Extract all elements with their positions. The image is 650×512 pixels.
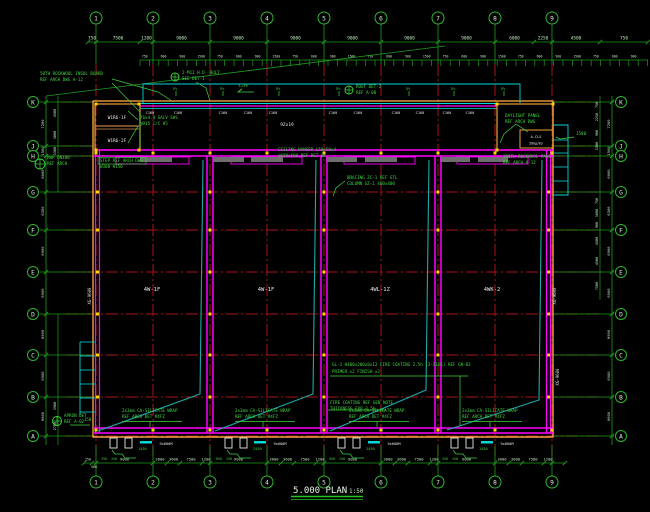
- dim-text-top1: 9000: [290, 36, 301, 42]
- door-count-label: 9x600M: [160, 442, 174, 446]
- dim-text-top2: 600: [537, 55, 543, 59]
- dim-text-top2: 1500: [498, 55, 506, 59]
- annotation-text: REF ARCH DWG A-12: [40, 77, 83, 82]
- sill-mark: [481, 441, 493, 444]
- slope-mark: 5%: [336, 86, 341, 91]
- grid-bubble-row-left-label: A: [31, 433, 35, 440]
- column-node: [547, 271, 550, 274]
- grid-bubble-col-bottom-label: 8: [493, 479, 497, 486]
- dim-text-left-inner: 3900: [53, 402, 57, 410]
- annotation-text: 2x3mm CA-SILICATE WRAP: [235, 408, 291, 413]
- annotation-text: 2x3mm CA-SILICATE WRAP: [349, 408, 405, 413]
- annotation-text: REF ARCH DET #4FZ: [235, 414, 278, 419]
- column-node: [437, 229, 440, 232]
- purlin-label: C160: [443, 111, 452, 115]
- column-node: [437, 313, 440, 316]
- dim-text-left: 6900: [40, 246, 45, 256]
- column-node: [323, 191, 326, 194]
- slope-mark: 5%: [173, 86, 178, 91]
- dim-text-top2: 900: [179, 55, 185, 59]
- dim-text-top1: 750: [88, 36, 96, 42]
- grid-bubble-col-top-label: 7: [436, 15, 440, 22]
- grid-bubble-row-right-label: H: [619, 153, 623, 160]
- grid-bubble-row-right-label: F: [619, 227, 623, 234]
- bay-label: 4WL-1Z: [370, 287, 391, 293]
- column-node: [547, 191, 550, 194]
- dim-text-right-inner: 4500: [595, 257, 599, 265]
- corner-box-right: [497, 104, 553, 150]
- dim-text-right: 1500: [606, 146, 611, 156]
- dim-text-right-inner: 7500: [595, 282, 599, 290]
- grid-bubble-col-top-label: 1: [94, 15, 98, 22]
- door-dim-text: 250: [111, 457, 117, 461]
- dim-text-top2: 900: [330, 55, 336, 59]
- door-frame: [451, 438, 458, 448]
- annotation-text: REF A-02: [64, 419, 85, 424]
- grid-bubble-col-bottom-label: 7: [436, 479, 440, 486]
- leader: [112, 83, 140, 147]
- grid-bubble-col-top-label: 4: [265, 15, 269, 22]
- column-node: [496, 103, 499, 106]
- slope-arrow-main: [238, 89, 254, 92]
- dim-text-top2: 900: [405, 55, 411, 59]
- dim-text-top2: 600: [461, 55, 467, 59]
- door-count-label: 9x600M: [501, 442, 515, 446]
- dim-text-top1: 9000: [233, 36, 244, 42]
- line: [46, 46, 445, 96]
- annotation-text: REF ARCH: [47, 161, 68, 166]
- purlin-label: C160: [269, 111, 278, 115]
- dim-text-bottom: 3600: [497, 457, 507, 462]
- column-node: [95, 103, 98, 106]
- purlin-label: C160: [354, 111, 363, 115]
- dim-text-top1: 7500: [113, 36, 124, 42]
- purlin-label: C160: [416, 111, 425, 115]
- grid-bubble-col-bottom-label: 4: [265, 479, 269, 486]
- slope-mark: 5%: [451, 86, 456, 91]
- door-dim-text: 850: [329, 457, 335, 461]
- title-scale: 1:50: [349, 488, 364, 495]
- column-node: [496, 149, 499, 152]
- door-count-label: 9x600M: [274, 442, 288, 446]
- dim-text-right-inner: 3600: [595, 209, 599, 217]
- grid-bubble-col-top-label: 2: [151, 15, 155, 22]
- dim-text-top2: 600: [311, 55, 317, 59]
- dim-text-top2: 900: [631, 55, 637, 59]
- grid-bubble-col-bottom-label: 6: [379, 479, 383, 486]
- column-node: [209, 229, 212, 232]
- grid-bubble-row-left-label: D: [31, 311, 35, 318]
- column-node: [96, 191, 99, 194]
- wall-label: XG-9600: [552, 287, 557, 304]
- annotation-text: 2-M12 H.D. BOLT: [182, 70, 220, 75]
- grid-bubble-row-right-label: D: [619, 311, 623, 318]
- grid-bubble-row-left-label: F: [31, 227, 35, 234]
- dim-text-left: 6900: [40, 288, 45, 298]
- column-node: [95, 149, 98, 152]
- dim-text-left: 6000: [40, 169, 45, 179]
- brace-diagonal: [98, 160, 203, 431]
- leader: [196, 82, 210, 101]
- column-node: [437, 354, 440, 357]
- column-node: [437, 191, 440, 194]
- dim-text-top1: 1200: [141, 36, 152, 42]
- annotation-text: REF ARCH DET #4FZ: [122, 414, 165, 419]
- annotation-text: GL-1 H400x200x8x12 FIRE COATING 2.5h (3-…: [332, 362, 471, 367]
- opening-bar: [326, 157, 357, 162]
- opening-bar: [365, 157, 397, 162]
- column-node: [323, 396, 326, 399]
- door-dim-text: 250: [339, 457, 345, 461]
- dim-text-bottom: 9000: [234, 457, 244, 462]
- dim-text-right: 7200: [606, 119, 611, 129]
- room-label: W1R6-2F: [108, 138, 127, 144]
- dim-text-left-inner: 4500: [53, 109, 57, 117]
- right-ladder: [553, 125, 568, 195]
- column-node: [437, 271, 440, 274]
- dim-text-bottom: 1200: [201, 457, 211, 462]
- dim-text-right: 6300: [606, 206, 611, 216]
- dim-text-right-inner: 900: [595, 222, 599, 228]
- column-node: [152, 152, 155, 155]
- column-node: [96, 313, 99, 316]
- annotation-text: RWP DN100: [47, 155, 70, 160]
- dim-text-bottom: 3600: [397, 457, 407, 462]
- annotation-text: REF ARCH A-12: [503, 160, 536, 165]
- dim-text-left: 6900: [40, 329, 45, 339]
- dim-text-bottom: 3600: [169, 457, 179, 462]
- grid-bubble-col-bottom-label: 9: [550, 479, 554, 486]
- purlin-label: C160: [329, 111, 338, 115]
- dim-text-top2: 900: [255, 55, 261, 59]
- column-node: [323, 313, 326, 316]
- dim-text-left: 1500: [40, 146, 45, 156]
- grid-bubble-row-right-label: J: [619, 143, 623, 150]
- dim-text-top2: 600: [612, 55, 618, 59]
- door-frame: [466, 438, 473, 448]
- door-dim-text: 250: [101, 457, 107, 461]
- dim-text-bottom: 3600: [155, 457, 165, 462]
- annotation-text: @600x600 REF DET-07: [278, 153, 326, 158]
- annotation-text: ROOF DET-2: [356, 84, 382, 89]
- column-node: [138, 149, 141, 152]
- column-node: [152, 429, 155, 432]
- slope-mark: 5%: [501, 86, 506, 91]
- grid-bubble-row-left-label: K: [31, 99, 35, 106]
- grid-bubble-col-bottom-label: 3: [208, 479, 212, 486]
- grid-bubble-row-left-label: H: [31, 153, 35, 160]
- dim-text-top2: 750: [443, 55, 449, 59]
- door-frame: [125, 438, 132, 448]
- grid-bubble-col-bottom-label: 1: [94, 479, 98, 486]
- room-label: W1R6-1F: [108, 115, 127, 121]
- annotation-text: REF ARCH DET #4FZ: [462, 414, 505, 419]
- grid-bubble-row-left-label: E: [31, 269, 35, 276]
- wall-label: XG-9600: [87, 287, 92, 304]
- column-node: [209, 271, 212, 274]
- dim-text-top2: 750: [142, 55, 148, 59]
- dim-text-bottom: 9000: [462, 457, 472, 462]
- column-node: [547, 229, 550, 232]
- annotation-text: PRIMER x2 FINISH x2: [332, 369, 380, 374]
- annotation-text: REF ARCH DET #4FZ: [349, 414, 392, 419]
- dim-text-left: 6600: [40, 411, 45, 421]
- column-node: [95, 152, 98, 155]
- column-node: [266, 152, 269, 155]
- column-node: [547, 396, 550, 399]
- column-node: [266, 429, 269, 432]
- annotation-text: REF A-08: [356, 90, 377, 95]
- dim-text-right-inner: 1500: [595, 142, 599, 150]
- brace-diagonal: [330, 160, 429, 431]
- column-node: [552, 103, 555, 106]
- dim-text-bottom: 7500: [528, 457, 538, 462]
- dim-text-left: 7200: [40, 119, 45, 129]
- sill-mark: [140, 441, 152, 444]
- column-node: [494, 152, 497, 155]
- dim-text-top1: 6000: [509, 36, 520, 42]
- leader: [516, 124, 528, 132]
- grid-bubble-col-top-label: 9: [550, 15, 554, 22]
- grid-bubble-col-top-label: 5: [322, 15, 326, 22]
- room-label: 50kg/m3: [529, 142, 543, 146]
- dim-text-top1: 9000: [404, 36, 415, 42]
- dim-text-right: 6000: [606, 169, 611, 179]
- annotation-text: W300 H150: [100, 164, 123, 169]
- purlin-label: C160: [466, 111, 475, 115]
- annotation-text: FIRE COATING REF GEN NOTE: [330, 400, 394, 405]
- column-node: [209, 191, 212, 194]
- dim-text-bottom: 250: [85, 458, 91, 462]
- dim-text-top1: 9000: [176, 36, 187, 42]
- dim-text-top2: 1500: [197, 55, 205, 59]
- column-node: [209, 152, 212, 155]
- leader: [112, 79, 172, 101]
- column-node: [95, 429, 98, 432]
- column-node: [437, 152, 440, 155]
- column-node: [323, 429, 326, 432]
- column-node: [323, 229, 326, 232]
- bay-label: 4W-1F: [258, 287, 275, 293]
- annotation-text: DAYLIGHT PANEL: [505, 113, 541, 118]
- column-node: [96, 271, 99, 274]
- dim-text-top2: 750: [518, 55, 524, 59]
- dim-text-bottom: 1200: [543, 457, 553, 462]
- column-node: [96, 354, 99, 357]
- annotation-text: 150: [84, 417, 92, 422]
- leader: [500, 124, 516, 143]
- strip-label: 9Zx19: [280, 122, 294, 128]
- annotation-text: STEP REF ARCH DWG: [100, 158, 143, 163]
- dim-text-right: 6600: [606, 411, 611, 421]
- bay-label: 4WK-2: [484, 287, 501, 293]
- column-node: [209, 429, 212, 432]
- dim-text-top1: 4500: [571, 36, 582, 42]
- column-node: [209, 354, 212, 357]
- dim-text-top2: 900: [555, 55, 561, 59]
- annotation-text: 2x3mm CA-SILICATE WRAP: [122, 408, 178, 413]
- grid-bubble-row-left-label: G: [31, 189, 35, 196]
- annotation-text: @915 C/C H5: [140, 121, 168, 126]
- dim-text-top1: 2250: [538, 36, 549, 42]
- dim-text-right-inner: 750: [595, 102, 599, 108]
- dim-text-top2: 600: [161, 55, 167, 59]
- title-text: 5.000 PLAN: [293, 486, 347, 496]
- annotation-text: 76x4.0 GALV SHS: [140, 115, 178, 120]
- dim-text-top2: 600: [386, 55, 392, 59]
- slope-mark: 5%: [276, 86, 281, 91]
- column-node: [96, 396, 99, 399]
- column-node: [96, 229, 99, 232]
- door-dim-text: 250: [226, 457, 232, 461]
- door-dim-text: 850: [216, 457, 222, 461]
- annotation-text: 1500: [576, 131, 587, 136]
- purlin-label: C160: [244, 111, 253, 115]
- grid-bubble-col-top-label: 6: [379, 15, 383, 22]
- dim-text-right: 6900: [606, 329, 611, 339]
- purlin-label: C160: [392, 111, 401, 115]
- slope-mark: 5%: [220, 86, 225, 91]
- door-frame: [353, 438, 360, 448]
- dim-text-top2: 750: [292, 55, 298, 59]
- door-frame: [338, 438, 345, 448]
- annotation-text: SEE DET-1: [182, 76, 205, 81]
- column-node: [209, 313, 212, 316]
- dim-text-right: 6900: [606, 288, 611, 298]
- grid-bubble-row-right-label: E: [619, 269, 623, 276]
- door-frame: [110, 438, 117, 448]
- column-node: [437, 396, 440, 399]
- column-node: [380, 429, 383, 432]
- dim-text-top2: 600: [236, 55, 242, 59]
- column-node: [380, 152, 383, 155]
- grid-bubble-col-top-label: 3: [208, 15, 212, 22]
- bay-label: 4W-1F: [144, 287, 161, 293]
- door-frame: [240, 438, 247, 448]
- door-dim-text: 2450: [253, 447, 262, 451]
- dim-text-bottom: 3600: [511, 457, 521, 462]
- door-dim-text: 1450: [138, 447, 147, 451]
- sill-mark: [368, 441, 380, 444]
- room-label: A-CLS: [531, 135, 542, 139]
- drawing-title: 5.000 PLAN 1:50: [291, 486, 364, 500]
- grid-bubble-row-right-label: C: [619, 352, 623, 359]
- dim-text-bottom: 1200: [315, 457, 325, 462]
- grid-bubble-row-left-label: J: [31, 143, 35, 150]
- dim-text-bottom: 3600: [283, 457, 293, 462]
- dim-text-left-inner: 3000: [53, 131, 57, 139]
- cad-canvas[interactable]: 7507500120090009000900090009000900060002…: [0, 0, 650, 512]
- grid-bubble-row-left-label: C: [31, 352, 35, 359]
- leader: [556, 137, 574, 139]
- brace-diagonal: [215, 160, 316, 431]
- annotation-text: 100TH ROCKWOOL PANEL: [503, 154, 554, 159]
- grid-bubble-col-top-label: 8: [493, 15, 497, 22]
- slope-mark-main: i=5%: [238, 83, 248, 88]
- door-dim-text: 250: [452, 457, 458, 461]
- cad-viewport[interactable]: 7507500120090009000900090009000900060002…: [0, 0, 650, 512]
- grid-bubble-row-right-label: B: [619, 394, 623, 401]
- eave-line: [143, 84, 520, 103]
- wall-label: XG-9600: [555, 368, 560, 385]
- door-frame: [225, 438, 232, 448]
- annotation-text: 2x3mm CA-SILICATE WRAP: [462, 408, 518, 413]
- opening-bar: [213, 157, 244, 162]
- grid-bubble-col-bottom-label: 2: [151, 479, 155, 486]
- door-dim-text: 250: [442, 457, 448, 461]
- dim-text-right-inner: 750: [595, 198, 599, 204]
- sill-mark: [254, 441, 266, 444]
- dim-text-bottom: 7500: [186, 457, 196, 462]
- column-node: [494, 429, 497, 432]
- dim-text-left: 6300: [40, 206, 45, 216]
- dim-text-top1: 750: [620, 36, 628, 42]
- column-node: [437, 429, 440, 432]
- dim-text-right-inner: 900: [595, 130, 599, 136]
- dim-text-top2: 900: [480, 55, 486, 59]
- annotation-text: COLUMN GZ-1 400x400: [347, 181, 395, 186]
- dim-text-top1: 9000: [461, 36, 472, 42]
- grid-bubble-row-right-label: K: [619, 99, 623, 106]
- column-node: [551, 429, 554, 432]
- column-node: [323, 271, 326, 274]
- dim-text-top2: 1500: [423, 55, 431, 59]
- dim-text-bottom: 500: [91, 465, 97, 469]
- dim-text-left-inner: 1500: [53, 147, 57, 155]
- dim-text-bottom: 3600: [383, 457, 393, 462]
- leader: [333, 181, 345, 196]
- dim-text-bottom: 7500: [414, 457, 424, 462]
- dim-text-top2: 1500: [272, 55, 280, 59]
- dim-text-left: 6900: [40, 371, 45, 381]
- slope-mark: 5%: [406, 86, 411, 91]
- dim-text-top2: 750: [593, 55, 599, 59]
- column-node: [138, 103, 141, 106]
- opening-bar: [440, 157, 470, 162]
- purlin-label: C160: [219, 111, 228, 115]
- grid-bubble-row-right-label: A: [619, 433, 623, 440]
- dim-text-left-inner: 2700: [53, 422, 57, 430]
- leader: [128, 111, 138, 120]
- dim-text-top2: 1500: [573, 55, 581, 59]
- dim-text-right: 6900: [606, 246, 611, 256]
- annotation-text: BRACING ZC-1 REF STL: [347, 175, 398, 180]
- annotation-text: REF ARCH DWG: [505, 119, 536, 124]
- dim-text-right-inner: 4500: [595, 237, 599, 245]
- dim-text-bottom: 3600: [269, 457, 279, 462]
- grid-bubble-row-left-label: B: [31, 394, 35, 401]
- column-node: [547, 313, 550, 316]
- annotation-text: 50TH ROCKWOOL INSUL BOARD: [40, 71, 104, 76]
- annotation-text: CEILING HANGER L50x50x4: [278, 147, 336, 152]
- dim-text-top2: 750: [217, 55, 223, 59]
- dim-text-bottom: 7500: [300, 457, 310, 462]
- column-node: [547, 354, 550, 357]
- column-node: [323, 354, 326, 357]
- grid-bubble-row-right-label: G: [619, 189, 623, 196]
- door-dim-text: 1450: [479, 447, 488, 451]
- dim-text-bottom: 1200: [429, 457, 439, 462]
- dim-text-right-inner: 2250: [595, 113, 599, 121]
- door-count-label: 9x600M: [388, 442, 402, 446]
- dim-text-right: 6900: [606, 371, 611, 381]
- dim-text-top1: 9000: [347, 36, 358, 42]
- column-node: [209, 396, 212, 399]
- door-dim-text: 2450: [366, 447, 375, 451]
